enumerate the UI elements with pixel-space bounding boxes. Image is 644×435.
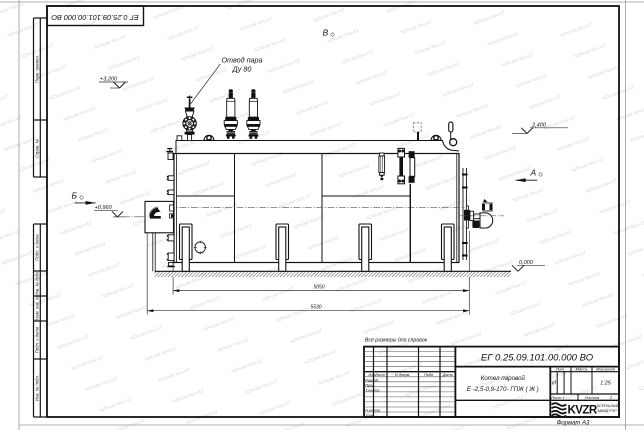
svg-text:Т.контр: Т.контр	[365, 388, 379, 392]
svg-text:ЗАВОД РЭП: ЗАВОД РЭП	[597, 409, 617, 413]
svg-text:Утв.: Утв.	[365, 414, 374, 418]
svg-text:Взам. инв. №: Взам. инв. №	[35, 295, 40, 321]
svg-text:KVZR: KVZR	[568, 404, 598, 417]
svg-text:Справ. №: Справ. №	[35, 139, 40, 158]
svg-text:Отвод пара: Отвод пара	[221, 56, 262, 65]
svg-text:Масштаб: Масштаб	[596, 367, 615, 372]
svg-text:Н.контр: Н.контр	[365, 409, 380, 413]
svg-text:Инв. № дубл.: Инв. № дубл.	[35, 271, 40, 297]
svg-text:ЕГ 0.25.09.101.00.000 ВО: ЕГ 0.25.09.101.00.000 ВО	[481, 353, 594, 364]
svg-text:+3,200: +3,200	[100, 77, 118, 83]
svg-text:5050: 5050	[313, 285, 324, 291]
svg-text:Листов: Листов	[584, 395, 600, 400]
svg-text:Дата: Дата	[442, 373, 453, 377]
svg-text:Подп.: Подп.	[424, 373, 434, 377]
svg-text:В: В	[323, 28, 329, 38]
svg-text:Перв. примен.: Перв. примен.	[35, 55, 40, 83]
svg-text:ЕГ 0.25.09.101.00.000 ВО: ЕГ 0.25.09.101.00.000 ВО	[51, 13, 139, 22]
svg-text:Лист: Лист	[375, 373, 386, 377]
svg-text:Котел паровой: Котел паровой	[481, 375, 526, 382]
svg-text:А: А	[530, 168, 537, 178]
svg-text:Подп. и дата: Подп. и дата	[35, 326, 40, 353]
svg-text:Разраб.: Разраб.	[365, 378, 379, 382]
svg-text:Б: Б	[72, 191, 78, 201]
svg-text:И: И	[552, 381, 556, 387]
svg-text:Ду 80: Ду 80	[232, 65, 252, 74]
svg-text:Подп. и дата: Подп. и дата	[35, 234, 40, 261]
svg-text:Инв. № подл.: Инв. № подл.	[35, 375, 40, 401]
svg-text:5530: 5530	[310, 305, 321, 311]
svg-text:КОТЕЛЬНЫЙ: КОТЕЛЬНЫЙ	[597, 404, 619, 408]
svg-text:Пров.: Пров.	[365, 383, 375, 387]
svg-text:1:25: 1:25	[600, 381, 612, 387]
svg-text:Лист 1: Лист 1	[550, 395, 565, 400]
svg-text:N докум.: N докум.	[395, 373, 410, 377]
svg-text:Масса: Масса	[576, 367, 589, 372]
svg-text:Все размеры для справок: Все размеры для справок	[365, 338, 428, 344]
svg-text:Лит.: Лит.	[555, 367, 565, 372]
svg-text:Формат А3: Формат А3	[557, 421, 590, 427]
svg-text:Е -2,5-0,9-170- ГПЖ ( Ж ): Е -2,5-0,9-170- ГПЖ ( Ж )	[467, 386, 539, 393]
